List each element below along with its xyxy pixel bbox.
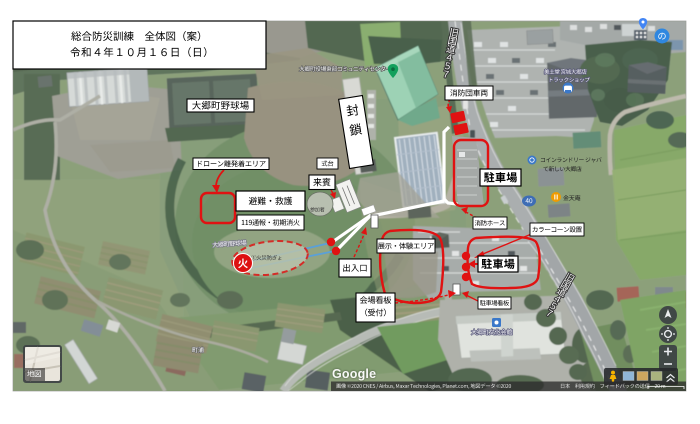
svg-text:Google: Google [332,367,376,381]
